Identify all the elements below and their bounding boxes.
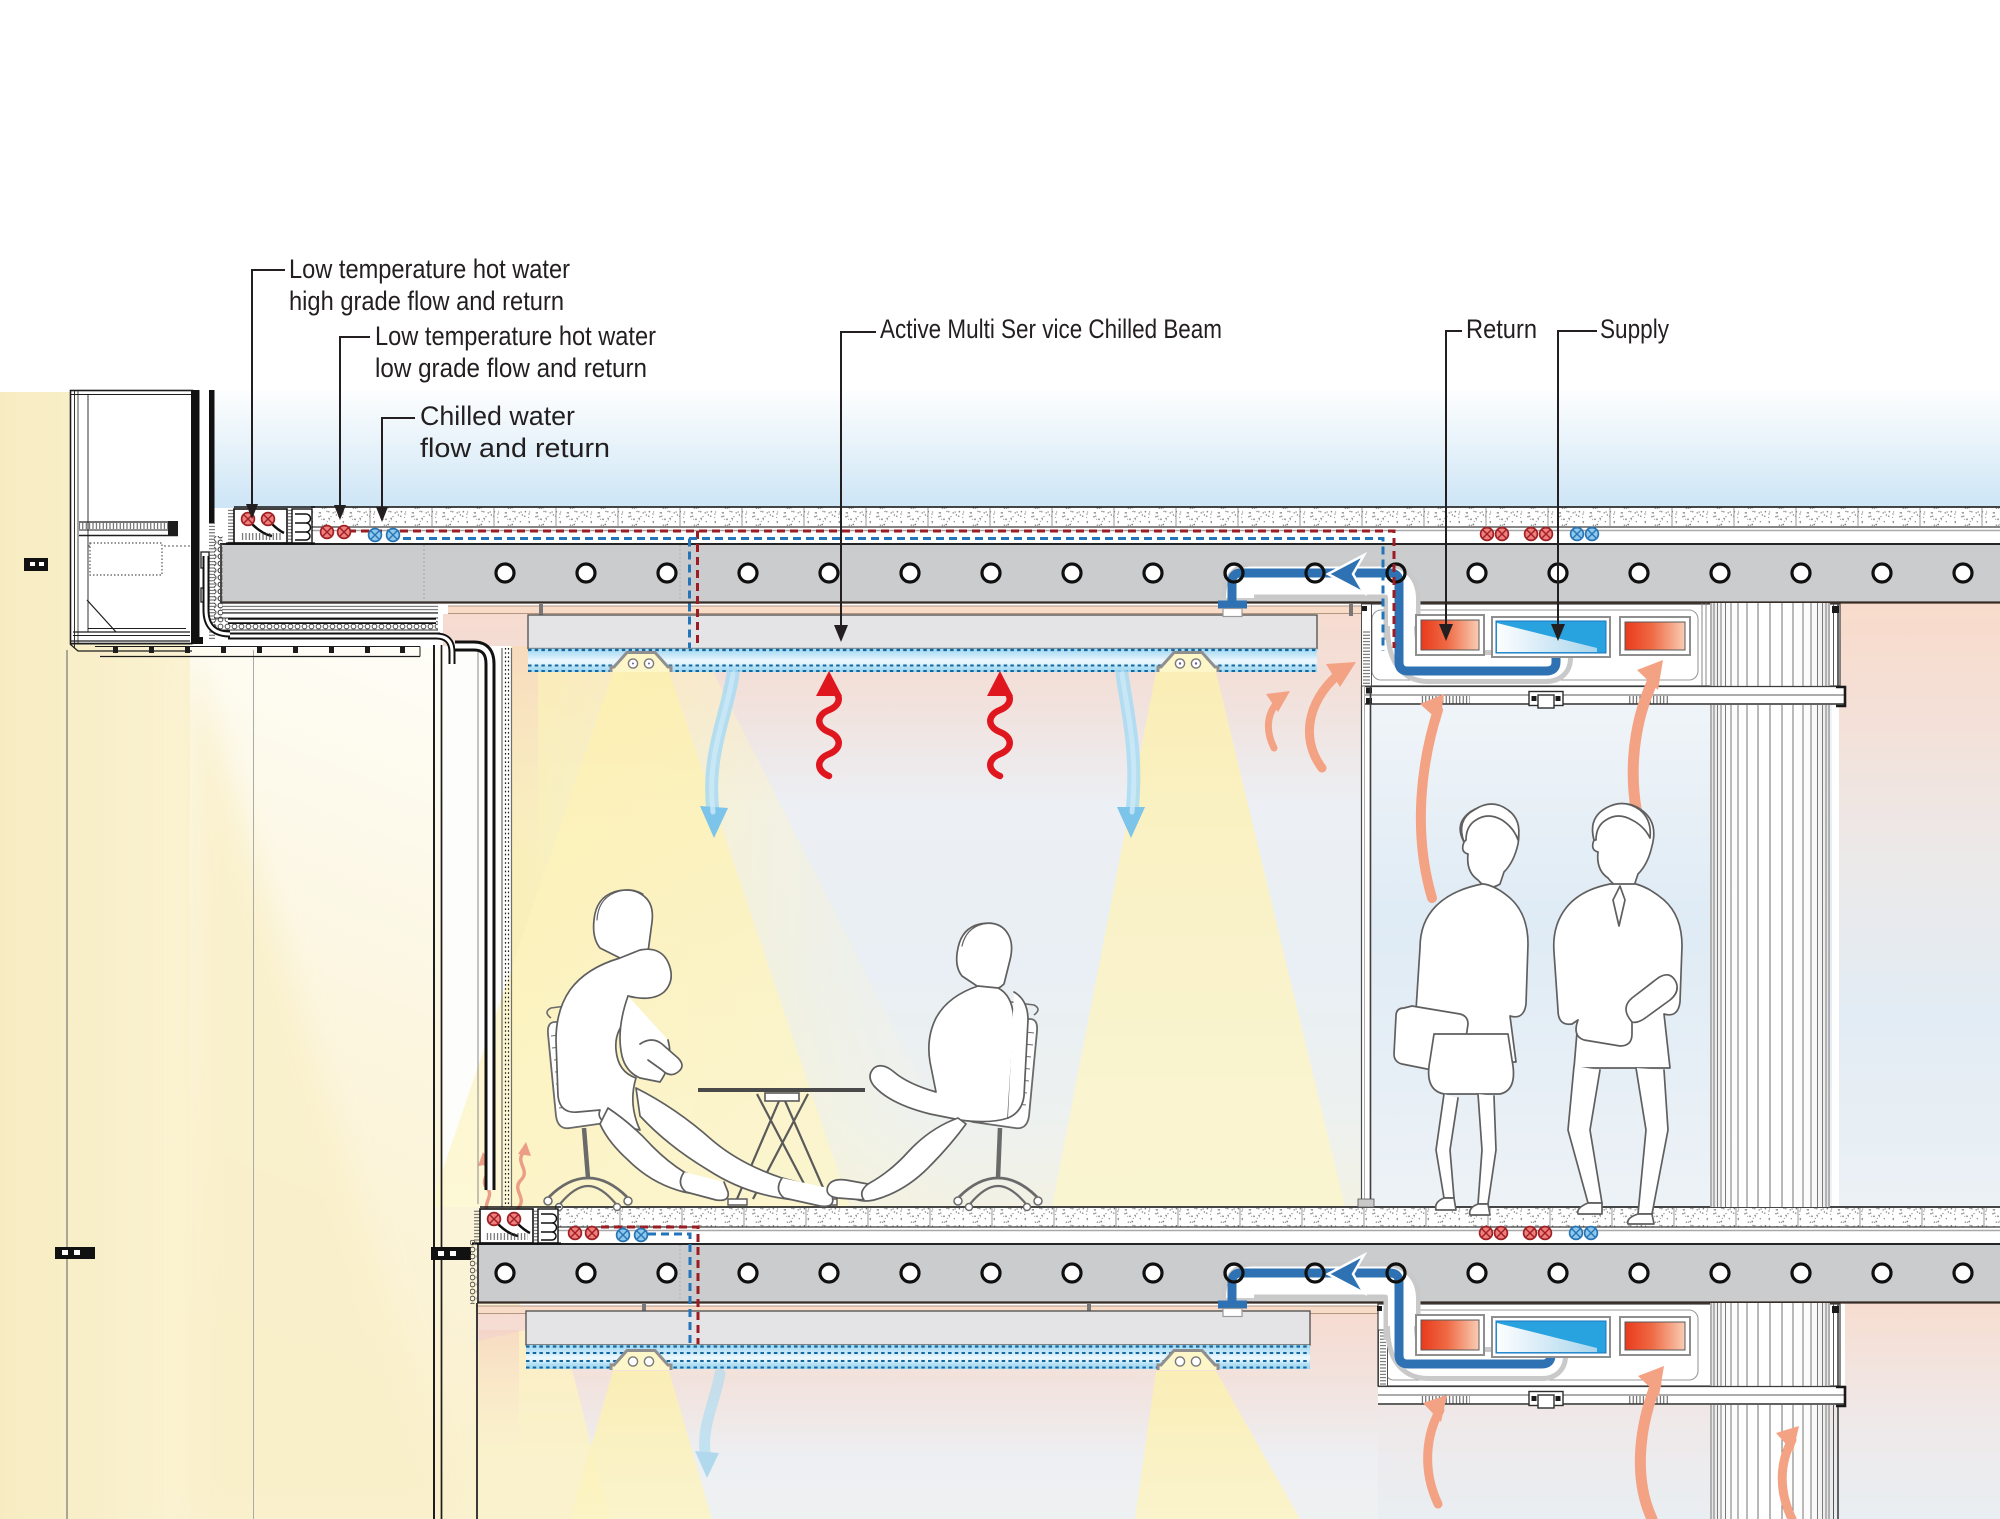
svg-text:high grade flow and return: high grade flow and return: [289, 286, 564, 316]
svg-text:Return: Return: [1466, 314, 1537, 344]
svg-text:Active Multi Ser vice Chilled: Active Multi Ser vice Chilled Beam: [880, 314, 1222, 344]
svg-text:low grade flow and return: low grade flow and return: [375, 353, 647, 383]
svg-text:Low temperature hot water: Low temperature hot water: [289, 254, 570, 284]
svg-text:flow and return: flow and return: [420, 433, 610, 463]
svg-text:Low temperature hot water: Low temperature hot water: [375, 321, 656, 351]
svg-text:Supply: Supply: [1600, 314, 1670, 344]
svg-text:Chilled water: Chilled water: [420, 401, 575, 431]
